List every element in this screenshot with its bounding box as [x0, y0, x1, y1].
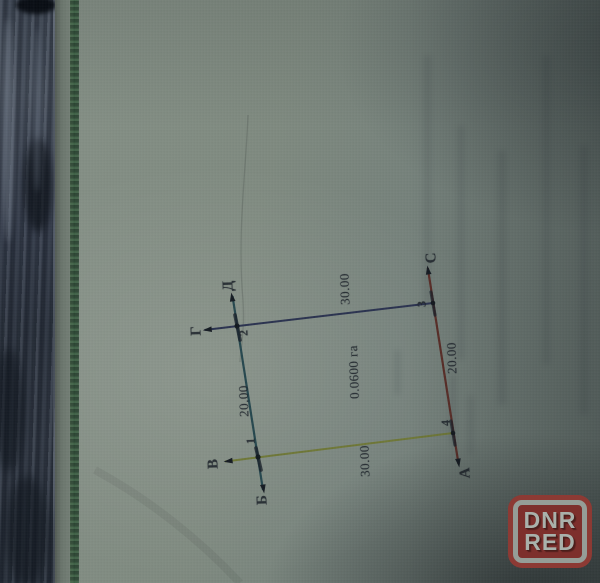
paper-crease	[95, 470, 240, 583]
plot-boundary-drawing	[0, 0, 600, 583]
arrowhead-to-b-icon	[260, 484, 266, 493]
direction-label-b: Б	[254, 495, 271, 506]
watermark-frame: DNR RED	[513, 500, 587, 563]
area-label: 0.0600 га	[345, 345, 363, 399]
arrowhead-to-d-icon	[230, 293, 236, 302]
watermark-line2: RED	[524, 532, 576, 553]
corner-number-3: 3	[414, 301, 429, 308]
corner-point-2	[234, 323, 239, 328]
direction-label-s: С	[423, 252, 440, 263]
corner-point-3	[431, 301, 436, 306]
side-length-left: 20.00	[235, 385, 252, 417]
corner-point-1	[255, 454, 260, 459]
direction-label-a: А	[457, 467, 474, 478]
direction-label-g: Г	[188, 326, 205, 336]
side-length-top: 30.00	[336, 273, 353, 305]
direction-label-v: В	[205, 459, 222, 470]
side-length-bottom: 30.00	[356, 445, 373, 477]
corner-point-4	[451, 431, 456, 436]
corner-number-2: 2	[236, 330, 251, 337]
direction-label-d: Д	[220, 281, 237, 292]
arrowhead-to-a-icon	[455, 458, 461, 467]
side-length-right: 20.00	[443, 342, 460, 374]
corner-number-4: 4	[438, 420, 453, 427]
arrowhead-to-s-icon	[426, 266, 432, 275]
dnr-red-watermark: DNR RED	[508, 495, 592, 568]
photo-of-land-survey-document: Д Г В Б С А 1 2 3 4 30.00 20.00 20.00 30…	[0, 0, 600, 583]
corner-number-1: 1	[243, 438, 258, 445]
